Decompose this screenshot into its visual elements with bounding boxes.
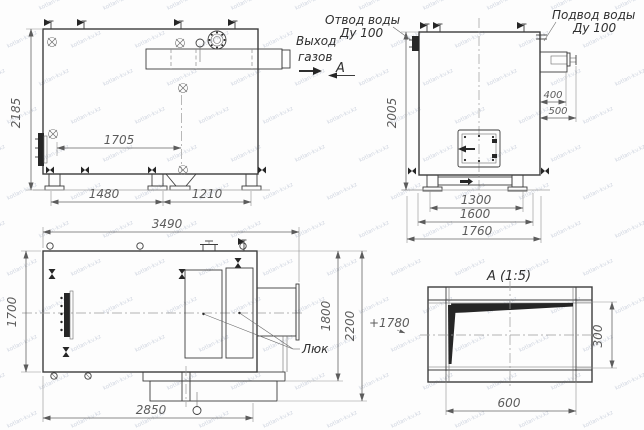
watermark-text: kotlan-kv.kz <box>582 258 614 278</box>
dim-1705: 1705 <box>104 133 135 147</box>
section-arrow-icon <box>328 73 337 79</box>
drawing-sheet: kotlan-kv.kzkotlan-kv.kzkotlan-kv.kzkotl… <box>0 0 644 430</box>
watermark-text: kotlan-kv.kz <box>262 182 294 202</box>
watermark-text: kotlan-kv.kz <box>166 144 198 164</box>
burner-flange-icon <box>60 291 73 339</box>
vent-valve-icon <box>77 19 87 29</box>
dim-400: 400 <box>543 90 562 101</box>
watermark-text: kotlan-kv.kz <box>102 220 134 240</box>
watermark-text: kotlan-kv.kz <box>230 220 262 240</box>
watermark-text: kotlan-kv.kz <box>582 182 614 202</box>
watermark-text: kotlan-kv.kz <box>70 410 102 430</box>
front-view: 2185 1705 1480 1210 Выход газов A <box>9 19 355 206</box>
drain-port-icon <box>193 407 201 415</box>
weld-seam-icon <box>448 305 456 364</box>
watermark-text: kotlan-kv.kz <box>70 30 102 50</box>
watermark-text: kotlan-kv.kz <box>166 68 198 88</box>
watermark-text: kotlan-kv.kz <box>230 372 262 392</box>
pipe-flange-stub-icon <box>200 241 218 251</box>
watermark-text: kotlan-kv.kz <box>134 182 166 202</box>
watermark-text: kotlan-kv.kz <box>518 334 550 354</box>
vent-valve-icon <box>228 19 238 29</box>
watermark-text: kotlan-kv.kz <box>582 106 614 126</box>
watermark-text: kotlan-kv.kz <box>422 220 454 240</box>
dim-1480: 1480 <box>89 187 120 201</box>
watermark-text: kotlan-kv.kz <box>454 106 486 126</box>
watermark-text: kotlan-kv.kz <box>582 410 614 430</box>
water-inlet-line1: Подвод воды <box>552 8 635 22</box>
boiler-body-front <box>43 29 258 174</box>
watermark-text: kotlan-kv.kz <box>326 182 358 202</box>
watermark-text: kotlan-kv.kz <box>358 68 390 88</box>
watermark-text: kotlan-kv.kz <box>486 144 518 164</box>
watermark-text: kotlan-kv.kz <box>6 30 38 50</box>
watermark-text: kotlan-kv.kz <box>294 372 326 392</box>
watermark-text: kotlan-kv.kz <box>134 258 166 278</box>
dim-2185: 2185 <box>9 98 23 129</box>
watermark-text: kotlan-kv.kz <box>454 410 486 430</box>
watermark-text: kotlan-kv.kz <box>358 296 390 316</box>
watermark-text: kotlan-kv.kz <box>326 106 358 126</box>
dim-1700: 1700 <box>5 296 19 327</box>
drain-valve-icon <box>46 167 266 174</box>
vent-valve-icon <box>420 22 430 32</box>
dim-1210: 1210 <box>192 187 223 201</box>
watermark-text: kotlan-kv.kz <box>262 30 294 50</box>
watermark-text: kotlan-kv.kz <box>422 144 454 164</box>
watermark-text: kotlan-kv.kz <box>390 410 422 430</box>
watermark-text: kotlan-kv.kz <box>70 258 102 278</box>
gas-outlet-label: Выход газов <box>296 34 336 75</box>
watermark-text: kotlan-kv.kz <box>0 220 6 240</box>
watermark-text: kotlan-kv.kz <box>486 68 518 88</box>
watermark-text: kotlan-kv.kz <box>6 334 38 354</box>
vent-valve-icon <box>174 19 184 29</box>
watermark-text: kotlan-kv.kz <box>614 68 644 88</box>
watermark-text: kotlan-kv.kz <box>486 0 518 12</box>
watermark-text: kotlan-kv.kz <box>262 334 294 354</box>
watermark-text: kotlan-kv.kz <box>70 334 102 354</box>
hinge-icon <box>492 154 497 158</box>
gas-duct <box>146 49 290 69</box>
vent-valve-icon <box>517 22 527 32</box>
watermark-text: kotlan-kv.kz <box>0 0 6 12</box>
hinge-icon <box>492 139 497 143</box>
watermark-text: kotlan-kv.kz <box>550 68 582 88</box>
watermark-text: kotlan-kv.kz <box>358 220 390 240</box>
dim-1760: 1760 <box>462 224 493 238</box>
water-inlet-label: Подвод воды Ду 100 <box>544 8 635 41</box>
water-outlet-line2: Ду 100 <box>339 26 384 40</box>
watermark-text: kotlan-kv.kz <box>0 372 6 392</box>
gas-outlet-line2: газов <box>298 50 332 64</box>
watermark-text: kotlan-kv.kz <box>614 296 644 316</box>
watermark-text: kotlan-kv.kz <box>6 410 38 430</box>
elevation-note: +1780 <box>369 316 410 333</box>
watermark-text: kotlan-kv.kz <box>6 258 38 278</box>
dim-2200: 2200 <box>343 310 357 341</box>
watermark-text: kotlan-kv.kz <box>326 258 358 278</box>
watermark-text: kotlan-kv.kz <box>294 0 326 12</box>
detail-a-title: A (1:5) <box>486 269 531 284</box>
watermark-text: kotlan-kv.kz <box>0 144 6 164</box>
detail-a-view: A (1:5) 300 600 <box>420 269 617 415</box>
watermark-text: kotlan-kv.kz <box>422 68 454 88</box>
dim-600: 600 <box>498 396 521 410</box>
vent-valve-icon <box>433 22 443 32</box>
vent-valve-icon <box>44 19 54 29</box>
water-inlet-line2: Ду 100 <box>572 21 617 35</box>
elevation-text: +1780 <box>369 316 410 330</box>
dim-1300: 1300 <box>461 193 492 207</box>
anchor-bolt-icon <box>51 373 91 379</box>
dim-500: 500 <box>548 106 567 117</box>
watermark-text: kotlan-kv.kz <box>614 372 644 392</box>
watermark-text: kotlan-kv.kz <box>326 410 358 430</box>
watermark-text: kotlan-kv.kz <box>422 0 454 12</box>
dim-1800: 1800 <box>319 300 333 331</box>
gas-duct-plan <box>257 284 299 372</box>
watermark-text: kotlan-kv.kz <box>518 410 550 430</box>
watermark-layer: kotlan-kv.kzkotlan-kv.kzkotlan-kv.kzkotl… <box>0 0 644 430</box>
watermark-text: kotlan-kv.kz <box>198 106 230 126</box>
dim-3490: 3490 <box>152 217 183 231</box>
watermark-text: kotlan-kv.kz <box>358 372 390 392</box>
watermark-text: kotlan-kv.kz <box>262 258 294 278</box>
watermark-text: kotlan-kv.kz <box>198 410 230 430</box>
dim-300: 300 <box>591 324 605 347</box>
watermark-text: kotlan-kv.kz <box>0 68 6 88</box>
watermark-text: kotlan-kv.kz <box>454 334 486 354</box>
watermark-text: kotlan-kv.kz <box>294 144 326 164</box>
dim-2005: 2005 <box>385 98 399 129</box>
watermark-text: kotlan-kv.kz <box>454 258 486 278</box>
dim-1600: 1600 <box>460 207 491 221</box>
boiler-technical-drawing: kotlan-kv.kzkotlan-kv.kzkotlan-kv.kzkotl… <box>0 0 644 430</box>
watermark-text: kotlan-kv.kz <box>390 334 422 354</box>
watermark-text: kotlan-kv.kz <box>454 30 486 50</box>
watermark-text: kotlan-kv.kz <box>102 0 134 12</box>
base-anchor-arrow-icon <box>460 178 473 185</box>
plan-view: Люк +1780 3490 1700 1800 2200 <box>5 217 410 422</box>
watermark-text: kotlan-kv.kz <box>614 220 644 240</box>
drain-valve-icon <box>408 168 549 175</box>
water-inlet-header <box>536 35 576 72</box>
watermark-text: kotlan-kv.kz <box>102 372 134 392</box>
water-outlet-label: Отвод воды Ду 100 <box>325 13 411 40</box>
watermark-text: kotlan-kv.kz <box>358 0 390 12</box>
hatch-label-text: Люк <box>301 342 329 356</box>
watermark-text: kotlan-kv.kz <box>134 106 166 126</box>
watermark-text: kotlan-kv.kz <box>550 220 582 240</box>
gas-outlet-line1: Выход <box>296 34 336 48</box>
watermark-text: kotlan-kv.kz <box>166 0 198 12</box>
watermark-text: kotlan-kv.kz <box>614 144 644 164</box>
watermark-text: kotlan-kv.kz <box>518 30 550 50</box>
watermark-text: kotlan-kv.kz <box>262 410 294 430</box>
watermark-text: kotlan-kv.kz <box>6 182 38 202</box>
dim-2850: 2850 <box>136 403 167 417</box>
watermark-text: kotlan-kv.kz <box>358 144 390 164</box>
watermark-text: kotlan-kv.kz <box>262 106 294 126</box>
watermark-text: kotlan-kv.kz <box>102 68 134 88</box>
water-outlet-line1: Отвод воды <box>325 13 400 27</box>
watermark-text: kotlan-kv.kz <box>390 258 422 278</box>
watermark-text: kotlan-kv.kz <box>70 106 102 126</box>
watermark-text: kotlan-kv.kz <box>134 334 166 354</box>
watermark-text: kotlan-kv.kz <box>550 144 582 164</box>
watermark-text: kotlan-kv.kz <box>38 0 70 12</box>
watermark-text: kotlan-kv.kz <box>230 0 262 12</box>
watermark-text: kotlan-kv.kz <box>134 30 166 50</box>
watermark-text: kotlan-kv.kz <box>518 106 550 126</box>
